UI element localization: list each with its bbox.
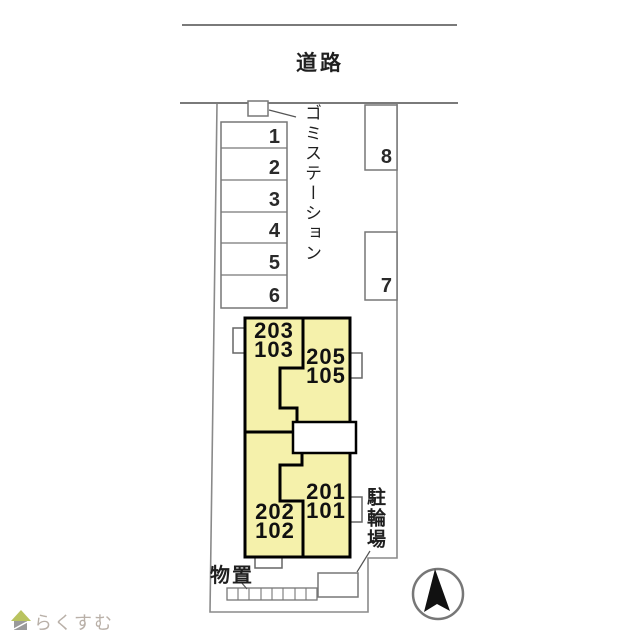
site-plan: 道路 ゴミステーション 1 2 3 4 5 6 8 7 203103 20510… [0, 0, 640, 640]
garbage-station-leader-line [269, 110, 296, 117]
rakusumu-logo-icon [11, 610, 31, 630]
storage-label: 物置 [210, 559, 254, 588]
meter-box-right-upper [350, 353, 362, 378]
meter-box-left [233, 328, 245, 353]
garbage-station-label: ゴミステーション [299, 104, 324, 284]
unit-105: 105 [306, 363, 346, 388]
garbage-station-box [248, 101, 268, 116]
stall-number-3: 3 [250, 190, 280, 210]
unit-102: 102 [255, 518, 295, 543]
unit-label-202-102: 202102 [249, 502, 301, 540]
stall-number-7: 7 [366, 276, 392, 296]
parking-left-outline [221, 122, 287, 308]
unit-label-203-103: 203103 [248, 321, 300, 359]
road-label: 道路 [280, 47, 360, 77]
unit-103: 103 [254, 337, 294, 362]
building-entry-notch [293, 422, 356, 453]
bicycle-parking-label: 駐輪場 [361, 487, 388, 557]
unit-label-205-105: 205105 [304, 347, 348, 385]
stall-number-8: 8 [366, 147, 392, 167]
unit-101: 101 [306, 498, 346, 523]
unit-label-201-101: 201101 [304, 482, 348, 520]
stall-number-5: 5 [250, 253, 280, 273]
stall-number-4: 4 [250, 221, 280, 241]
rakusumu-watermark: らくすむ [34, 609, 114, 635]
stall-number-1: 1 [250, 127, 280, 147]
site-plan-drawing [0, 0, 640, 640]
bicycle-parking-box [318, 573, 358, 597]
stall-number-6: 6 [250, 286, 280, 306]
stall-number-2: 2 [250, 158, 280, 178]
